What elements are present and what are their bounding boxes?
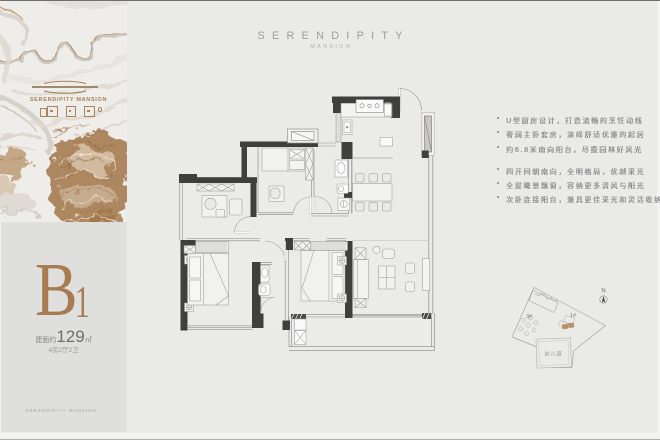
- svg-text:N: N: [601, 289, 605, 295]
- svg-text:3#: 3#: [526, 314, 533, 320]
- svg-text:1#: 1#: [570, 313, 577, 319]
- svg-text:幼儿园: 幼儿园: [544, 351, 562, 358]
